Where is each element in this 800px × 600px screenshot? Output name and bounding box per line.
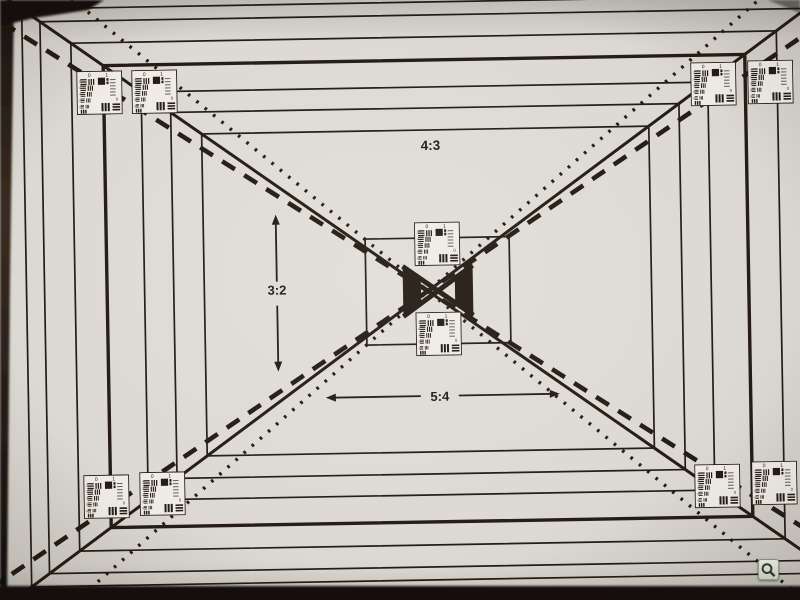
magnifier-zoom-button[interactable]	[758, 559, 779, 580]
resolution-target-card-2	[132, 70, 178, 114]
arrow-3-2-shaft	[276, 221, 277, 282]
resolution-target-card-6	[416, 312, 462, 356]
aspect-label-4-3: 4:3	[421, 138, 441, 153]
resolution-chart: 012345604:33:25:4	[0, 0, 800, 600]
resolution-target-card-8	[140, 472, 186, 516]
aspect-label-5-4: 5:4	[430, 389, 450, 404]
resolution-target-card-3	[691, 62, 737, 106]
resolution-target-card-7	[84, 475, 130, 519]
test-chart-photo: 012345604:33:25:4	[0, 0, 800, 600]
magnifier-zoom-icon	[760, 562, 777, 579]
photo-bottom-edge-strip	[0, 586, 800, 600]
resolution-target-card-9	[695, 464, 741, 508]
resolution-target-card-5	[414, 222, 460, 266]
resolution-target-card-4	[748, 60, 794, 104]
arrow-3-2-shaft	[277, 306, 278, 366]
resolution-target-card-10	[752, 461, 798, 505]
resolution-target-card-1	[77, 71, 123, 115]
aspect-label-3-2: 3:2	[267, 282, 286, 297]
